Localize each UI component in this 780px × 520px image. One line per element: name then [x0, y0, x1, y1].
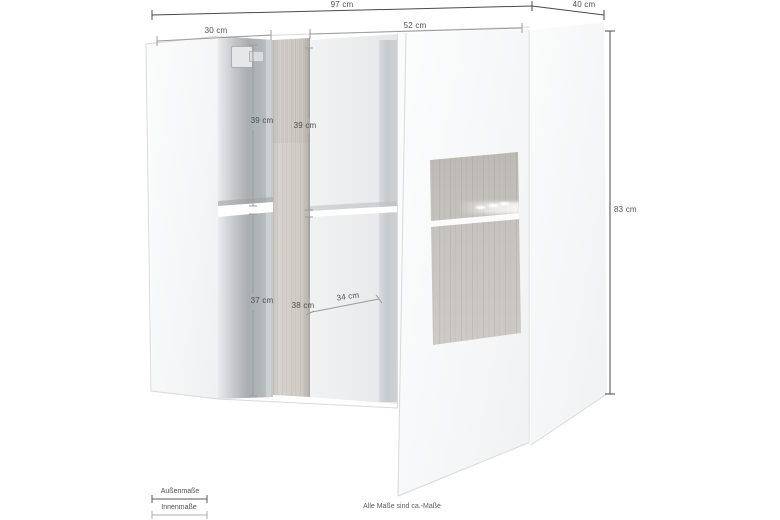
oak-divider-panel — [273, 38, 310, 397]
dim-label-outer-height: 83 cm — [614, 205, 637, 215]
dim-label-left-lower-height: 37 cm — [251, 296, 274, 306]
legend-outer-label: Außenmaße — [161, 487, 200, 496]
legend-inner-label: Innenmaße — [161, 503, 196, 512]
led-sparkle-icon — [498, 201, 511, 206]
dim-label-outer-depth: 40 cm — [573, 0, 596, 10]
legend-inner-line — [152, 511, 207, 519]
dim-label-left-upper-height: 39 cm — [251, 116, 274, 126]
dim-label-center-lower-height: 38 cm — [292, 301, 315, 311]
dim-label-outer-width: 97 cm — [331, 0, 354, 10]
led-sparkle-icon — [474, 205, 487, 210]
right-side-panel — [529, 15, 607, 445]
led-light-layer — [428, 152, 522, 345]
right-partition-wall — [379, 40, 397, 402]
dim-label-right-section-width: 52 cm — [404, 21, 427, 31]
left-compartment-interior — [218, 36, 273, 400]
left-shelf-shadow — [218, 36, 273, 400]
furniture-dimension-diagram: 97 cm 40 cm 83 cm 30 cm 52 cm 39 cm 39 c… — [0, 0, 780, 520]
dim-label-center-upper-height: 39 cm — [294, 121, 317, 131]
left-door-open — [146, 36, 218, 399]
legend-outer-line — [152, 495, 207, 503]
right-glass-door — [398, 29, 528, 497]
center-compartment-interior — [310, 33, 398, 406]
dim-label-left-section-width: 30 cm — [205, 26, 228, 36]
measurement-note: Alle Maße sind ca.-Maße — [363, 502, 441, 511]
back-corner-highlight — [266, 36, 271, 400]
left-shelf — [218, 36, 273, 400]
hinge-arm-icon — [249, 51, 264, 62]
